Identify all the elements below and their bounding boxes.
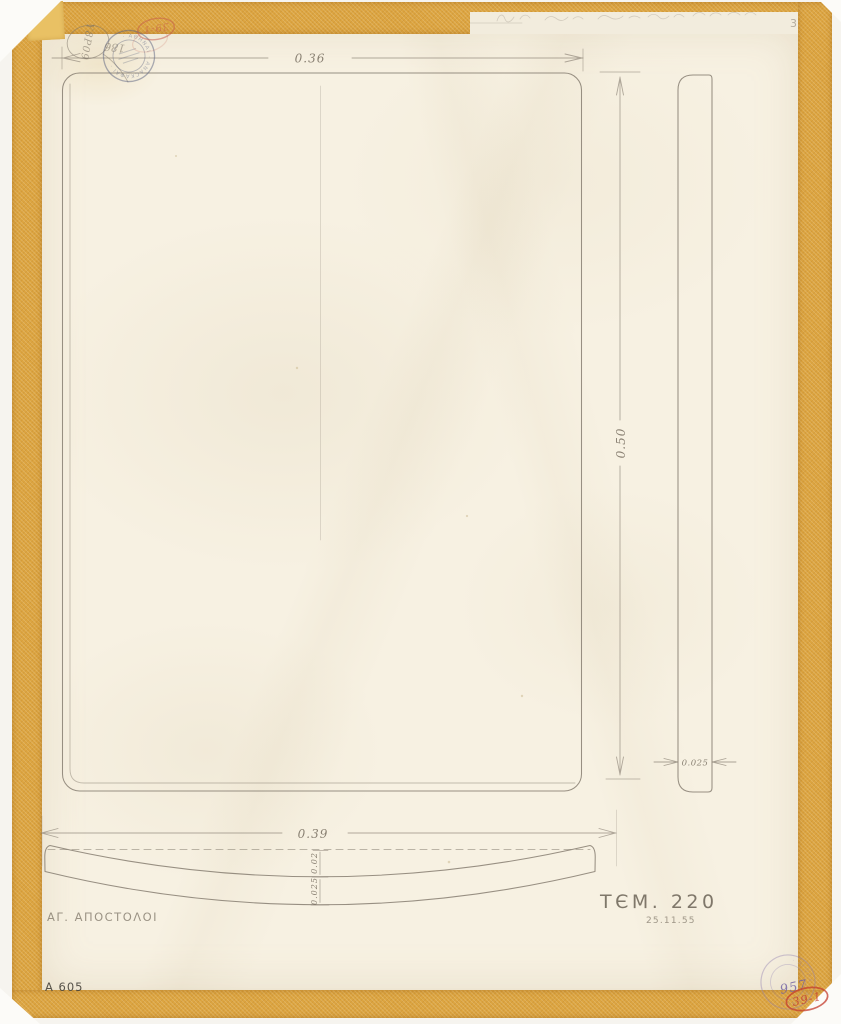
site-name: ΑΓ. ΑΠΟCΤΟΛΟΙ [47,910,158,924]
top-edge-handwriting: 3 [470,12,797,30]
item-reference: ΤЄΜ. 220 [599,891,718,913]
dim-front-width: 0.36 [52,47,583,71]
dim-bottom-centre: 0.02 0.025 [310,851,329,906]
dim-label-bottom-width: 0.39 [298,827,329,841]
front-view [63,73,582,791]
bottom-section-view [42,810,617,905]
dim-bottom-width: 0.39 [41,827,616,841]
date: 25.11.55 [646,916,696,926]
pencil-drawing: 3 0.36 0.50 0.025 [0,0,841,1024]
dim-label-side-thickness: 0.025 [682,759,709,769]
balloon-number: Υ8Ρ09 [78,22,95,61]
dim-side-thickness: 0.025 [654,759,736,769]
paper-specks [175,155,523,863]
dim-label-front-width: 0.36 [295,52,326,66]
stamp-pencil-note: 186 [103,40,125,55]
dim-label-bottom-rise: 0.02 [310,852,319,874]
page-number: 3 [790,17,797,30]
side-section-view [678,75,712,792]
dim-label-front-height: 0.50 [614,428,628,459]
inventory-number: A 605 [45,980,83,994]
dim-front-height: 0.50 [600,72,640,779]
scanned-drawing-sheet: 3 0.36 0.50 0.025 [0,0,841,1024]
dim-label-bottom-thickness: 0.025 [310,877,319,905]
